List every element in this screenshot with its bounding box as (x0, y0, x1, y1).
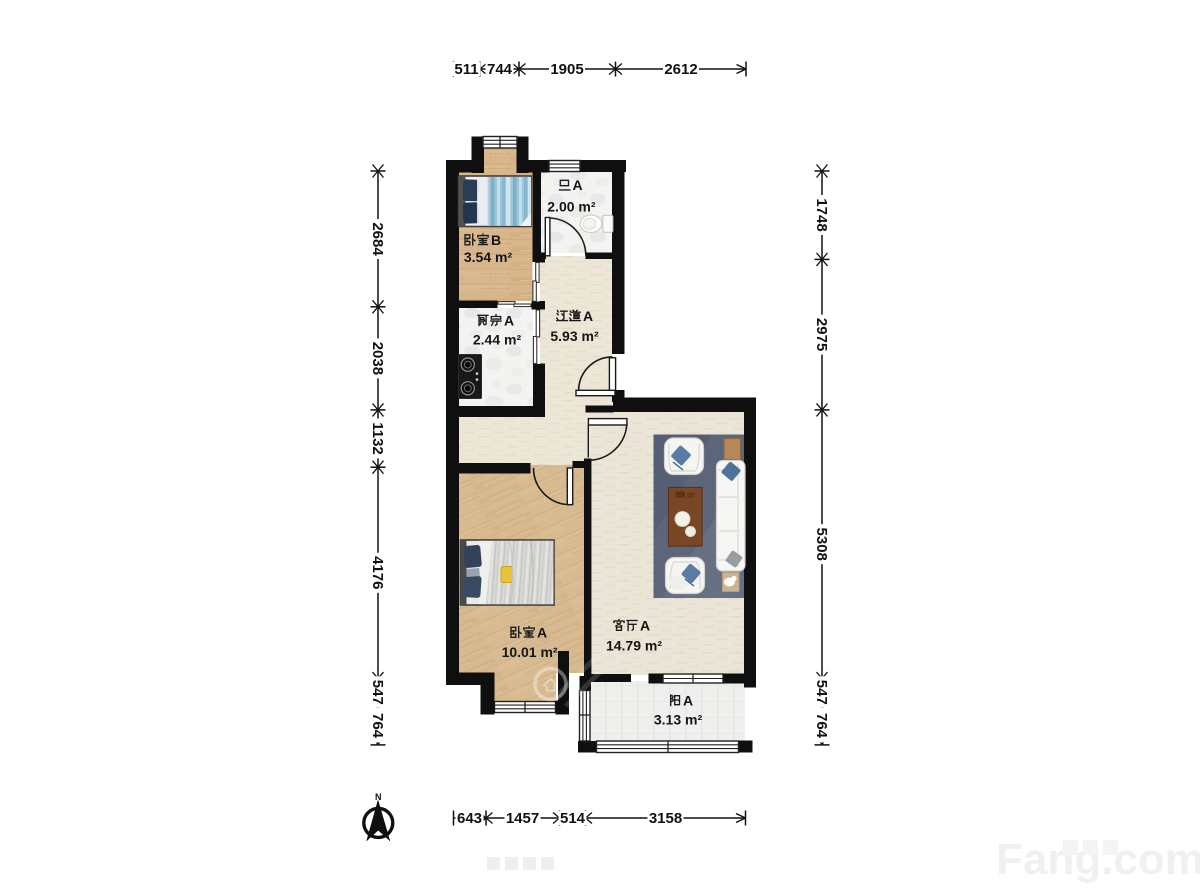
svg-text:1132: 1132 (369, 422, 386, 455)
svg-text:2.00 m²: 2.00 m² (547, 199, 596, 215)
svg-text:A: A (537, 625, 547, 641)
svg-text:2038: 2038 (369, 342, 386, 375)
svg-text:3.13 m²: 3.13 m² (654, 712, 703, 728)
svg-text:A: A (640, 618, 650, 634)
svg-text:N: N (375, 792, 382, 802)
svg-text:A: A (504, 313, 514, 329)
svg-text:2975: 2975 (813, 318, 830, 351)
svg-text:5308: 5308 (813, 528, 830, 561)
svg-text:643: 643 (457, 810, 482, 827)
svg-text:1748: 1748 (813, 198, 830, 231)
svg-text:2684: 2684 (369, 222, 386, 256)
svg-text:547: 547 (813, 680, 830, 705)
svg-text:A: A (573, 177, 583, 193)
svg-text:514: 514 (560, 810, 586, 827)
svg-text:744: 744 (487, 61, 513, 78)
svg-text:547: 547 (369, 680, 386, 705)
svg-text:A: A (683, 693, 693, 709)
svg-text:14.79 m²: 14.79 m² (606, 638, 662, 654)
svg-text:5.93 m²: 5.93 m² (550, 328, 599, 344)
svg-text:764: 764 (813, 713, 830, 739)
svg-text:511: 511 (454, 61, 478, 78)
svg-text:3158: 3158 (649, 810, 682, 827)
svg-text:10.01 m²: 10.01 m² (502, 644, 558, 660)
svg-text:1905: 1905 (550, 61, 583, 78)
svg-text:2.44 m²: 2.44 m² (473, 332, 522, 348)
svg-text:2612: 2612 (664, 61, 697, 78)
svg-text:3.54 m²: 3.54 m² (464, 249, 513, 265)
svg-text:Fang.com: Fang.com (996, 835, 1200, 884)
svg-text:B: B (491, 232, 501, 248)
svg-text:1457: 1457 (506, 810, 539, 827)
svg-text:A: A (583, 308, 593, 324)
svg-text:4176: 4176 (369, 556, 386, 589)
svg-text:764: 764 (369, 713, 386, 739)
